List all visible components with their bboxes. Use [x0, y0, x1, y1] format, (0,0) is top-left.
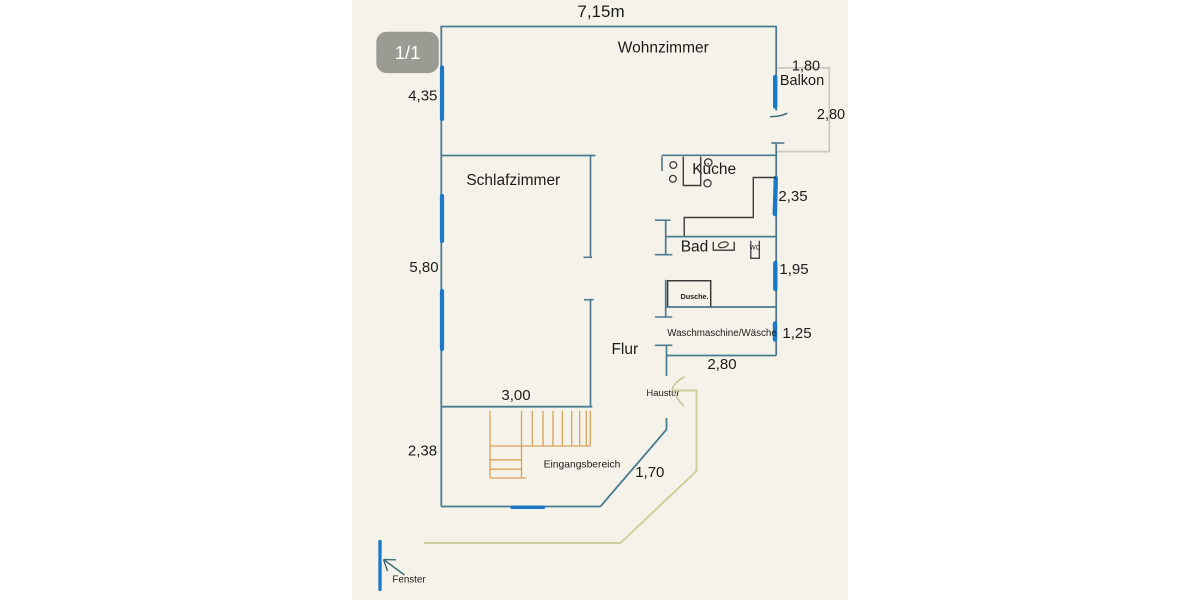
- svg-text:2,38: 2,38: [408, 442, 437, 459]
- svg-text:4,35: 4,35: [408, 88, 437, 105]
- svg-text:5,80: 5,80: [409, 259, 438, 276]
- svg-text:WC: WC: [750, 245, 761, 252]
- svg-text:1,95: 1,95: [779, 261, 808, 278]
- svg-text:Flur: Flur: [611, 341, 638, 358]
- svg-text:2,35: 2,35: [778, 188, 807, 205]
- svg-text:Dusche.: Dusche.: [681, 292, 709, 301]
- svg-text:Küche: Küche: [692, 161, 736, 178]
- svg-text:1,80: 1,80: [792, 59, 820, 75]
- svg-text:Fenster: Fenster: [392, 574, 426, 585]
- svg-text:Eingangsbereich: Eingangsbereich: [544, 460, 621, 471]
- svg-text:1,25: 1,25: [782, 325, 811, 342]
- svg-text:7,15m: 7,15m: [577, 2, 624, 21]
- svg-text:3,00: 3,00: [501, 387, 530, 404]
- svg-text:2,80: 2,80: [817, 107, 845, 123]
- svg-text:Bad: Bad: [681, 239, 709, 256]
- svg-text:Schlafzimmer: Schlafzimmer: [466, 172, 560, 189]
- svg-text:2,80: 2,80: [707, 356, 736, 373]
- svg-text:Balkon: Balkon: [780, 73, 824, 89]
- svg-text:Waschmaschine/Wäsche: Waschmaschine/Wäsche: [667, 328, 777, 339]
- svg-text:Wohnzimmer: Wohnzimmer: [618, 40, 709, 57]
- svg-text:1/1: 1/1: [395, 42, 421, 63]
- svg-text:1,70: 1,70: [635, 464, 664, 481]
